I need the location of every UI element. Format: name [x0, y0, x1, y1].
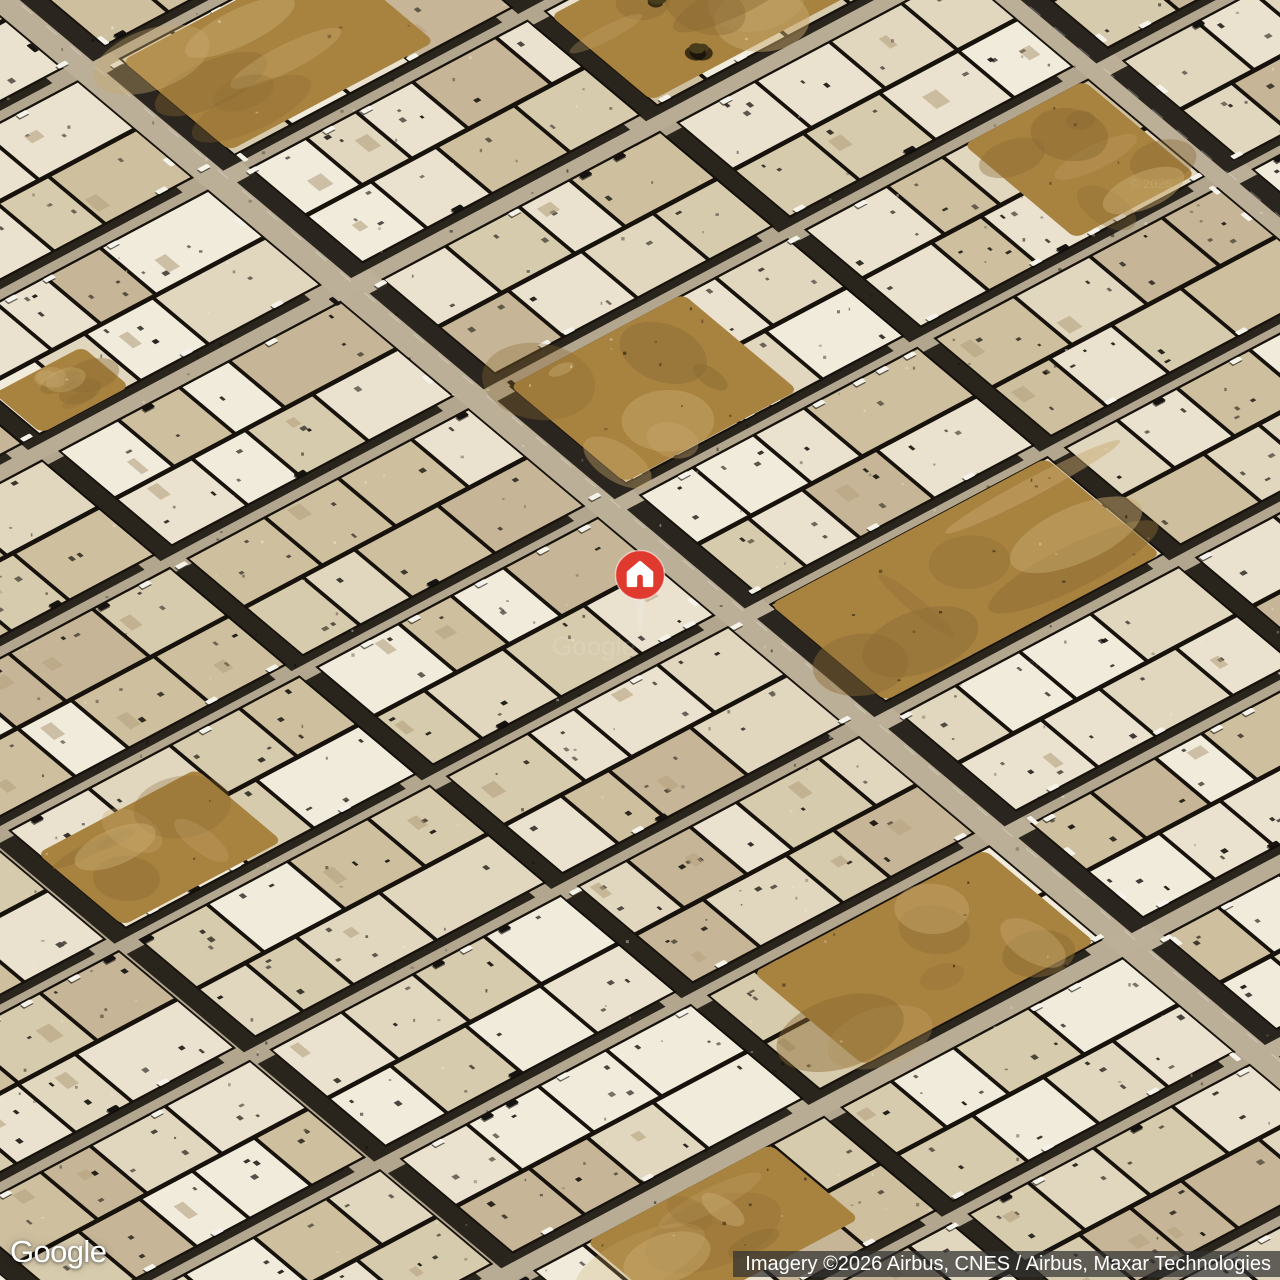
- map-viewport[interactable]: Google© 2026© 2026 Google Imagery ©2026 …: [0, 0, 1280, 1280]
- svg-text:© 2026: © 2026: [1000, 658, 1042, 673]
- satellite-imagery-layer: [0, 0, 1280, 1280]
- satellite-map[interactable]: Google© 2026© 2026: [0, 0, 1280, 1280]
- svg-text:© 2026: © 2026: [1130, 176, 1172, 191]
- attribution-text: Imagery ©2026 Airbus, CNES / Airbus, Max…: [745, 1253, 1271, 1275]
- attribution-bar: Imagery ©2026 Airbus, CNES / Airbus, Max…: [733, 1251, 1280, 1277]
- marker-circle: [616, 551, 665, 600]
- google-logo[interactable]: Google: [10, 1234, 106, 1270]
- svg-text:Google: Google: [552, 631, 636, 661]
